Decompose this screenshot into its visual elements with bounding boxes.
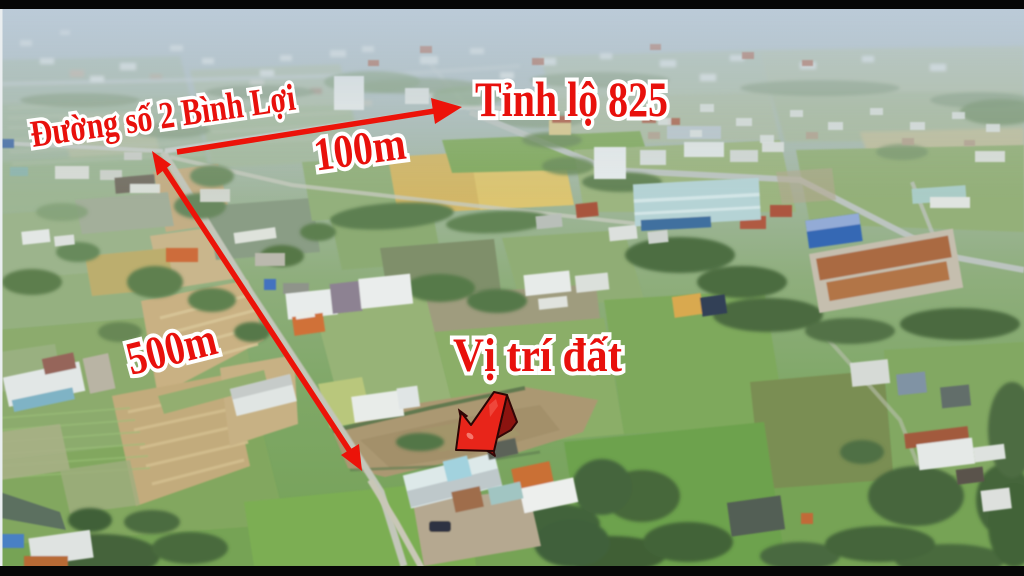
svg-text:Tỉnh lộ 825: Tỉnh lộ 825 xyxy=(475,71,668,127)
svg-text:Vị trí đất: Vị trí đất xyxy=(453,329,622,382)
